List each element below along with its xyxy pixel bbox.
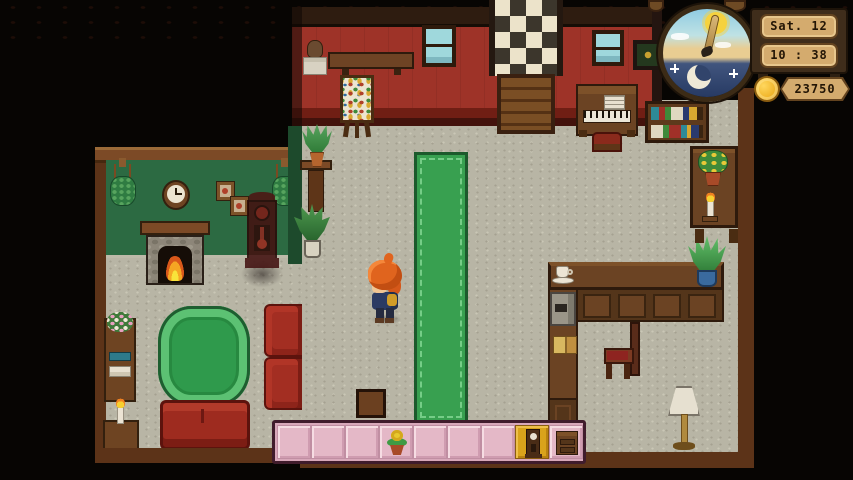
stool[interactable]	[356, 389, 386, 418]
day-night-clock-dial	[658, 4, 756, 102]
floor-plant[interactable]	[294, 204, 330, 260]
stacked-books	[553, 336, 577, 354]
flower-shelf[interactable]	[104, 318, 136, 402]
potted-flower-item[interactable]	[387, 430, 407, 455]
potted-plant[interactable]	[302, 124, 332, 168]
moon-icon	[687, 65, 711, 89]
window	[592, 30, 624, 66]
money-display: 23750	[782, 79, 848, 99]
time-display: 10 : 38	[760, 43, 838, 68]
piano[interactable]	[576, 84, 638, 136]
flower-pot[interactable]	[698, 150, 728, 188]
player-character[interactable]	[364, 252, 408, 326]
grandfather-clock-preview[interactable]	[245, 192, 279, 268]
runner-rug[interactable]	[414, 152, 468, 424]
hotbar-slot-7[interactable]	[481, 425, 515, 459]
easel-painting[interactable]	[340, 75, 374, 123]
hud-knob-icon	[648, 0, 664, 12]
hotbar-slot-9[interactable]	[549, 425, 583, 459]
piano-stool[interactable]	[592, 132, 622, 152]
right-wall-border	[738, 88, 754, 468]
book-row	[651, 125, 703, 138]
wall-shelf[interactable]	[328, 52, 414, 69]
wall-top-trim	[558, 7, 662, 27]
flame-icon	[706, 192, 715, 202]
piano-keys-icon	[583, 110, 631, 123]
hotbar-slot-6[interactable]	[447, 425, 481, 459]
couch[interactable]	[160, 400, 250, 450]
star-icon	[729, 69, 738, 78]
window	[422, 25, 456, 67]
hotbar-slots	[277, 425, 583, 459]
coffee-cup[interactable]	[552, 264, 574, 284]
hanging-doll-icon	[307, 40, 323, 58]
hotbar-slot-3[interactable]	[345, 425, 379, 459]
hanging-plant[interactable]	[110, 158, 136, 208]
fireplace-mantel	[140, 221, 210, 235]
coffee-machine[interactable]	[550, 292, 576, 326]
star-icon	[670, 64, 679, 73]
candle	[702, 192, 718, 222]
wooden-door[interactable]	[497, 74, 555, 134]
grandfather-clock-item[interactable]	[526, 429, 540, 456]
left-wall-border	[95, 147, 106, 463]
sheet-music-icon	[604, 95, 625, 110]
hotbar-slot-1[interactable]	[277, 425, 311, 459]
hotbar-slot-4[interactable]	[379, 425, 413, 459]
hanging-note	[303, 57, 327, 75]
book-row	[651, 107, 703, 120]
fire-icon	[166, 256, 184, 281]
wall-clock[interactable]	[162, 180, 190, 210]
flame-icon	[116, 398, 125, 408]
round-rug[interactable]	[158, 306, 250, 406]
dining-chair[interactable]	[604, 322, 640, 380]
hotbar-slot-8-selected[interactable]	[515, 425, 549, 459]
cloud-icon	[715, 42, 731, 48]
plant-pot-icon	[697, 270, 717, 287]
candle	[112, 398, 128, 426]
flower-bouquet-icon	[107, 312, 133, 332]
game-viewport: Sat. 12 10 : 38 23750	[0, 0, 853, 480]
checkered-landing	[494, 0, 558, 76]
hotbar-slot-2[interactable]	[311, 425, 345, 459]
hotbar-slot-5[interactable]	[413, 425, 447, 459]
plant-hook-icon	[119, 158, 126, 167]
cloud-icon	[671, 33, 689, 40]
money-plaque: 23750	[780, 77, 850, 101]
bookshelf[interactable]	[645, 101, 709, 143]
wall-top-trim	[292, 7, 494, 27]
coin-icon	[754, 76, 780, 102]
counter-cabinets	[576, 288, 724, 322]
dresser-item[interactable]	[556, 431, 578, 455]
date-display: Sat. 12	[760, 14, 838, 39]
